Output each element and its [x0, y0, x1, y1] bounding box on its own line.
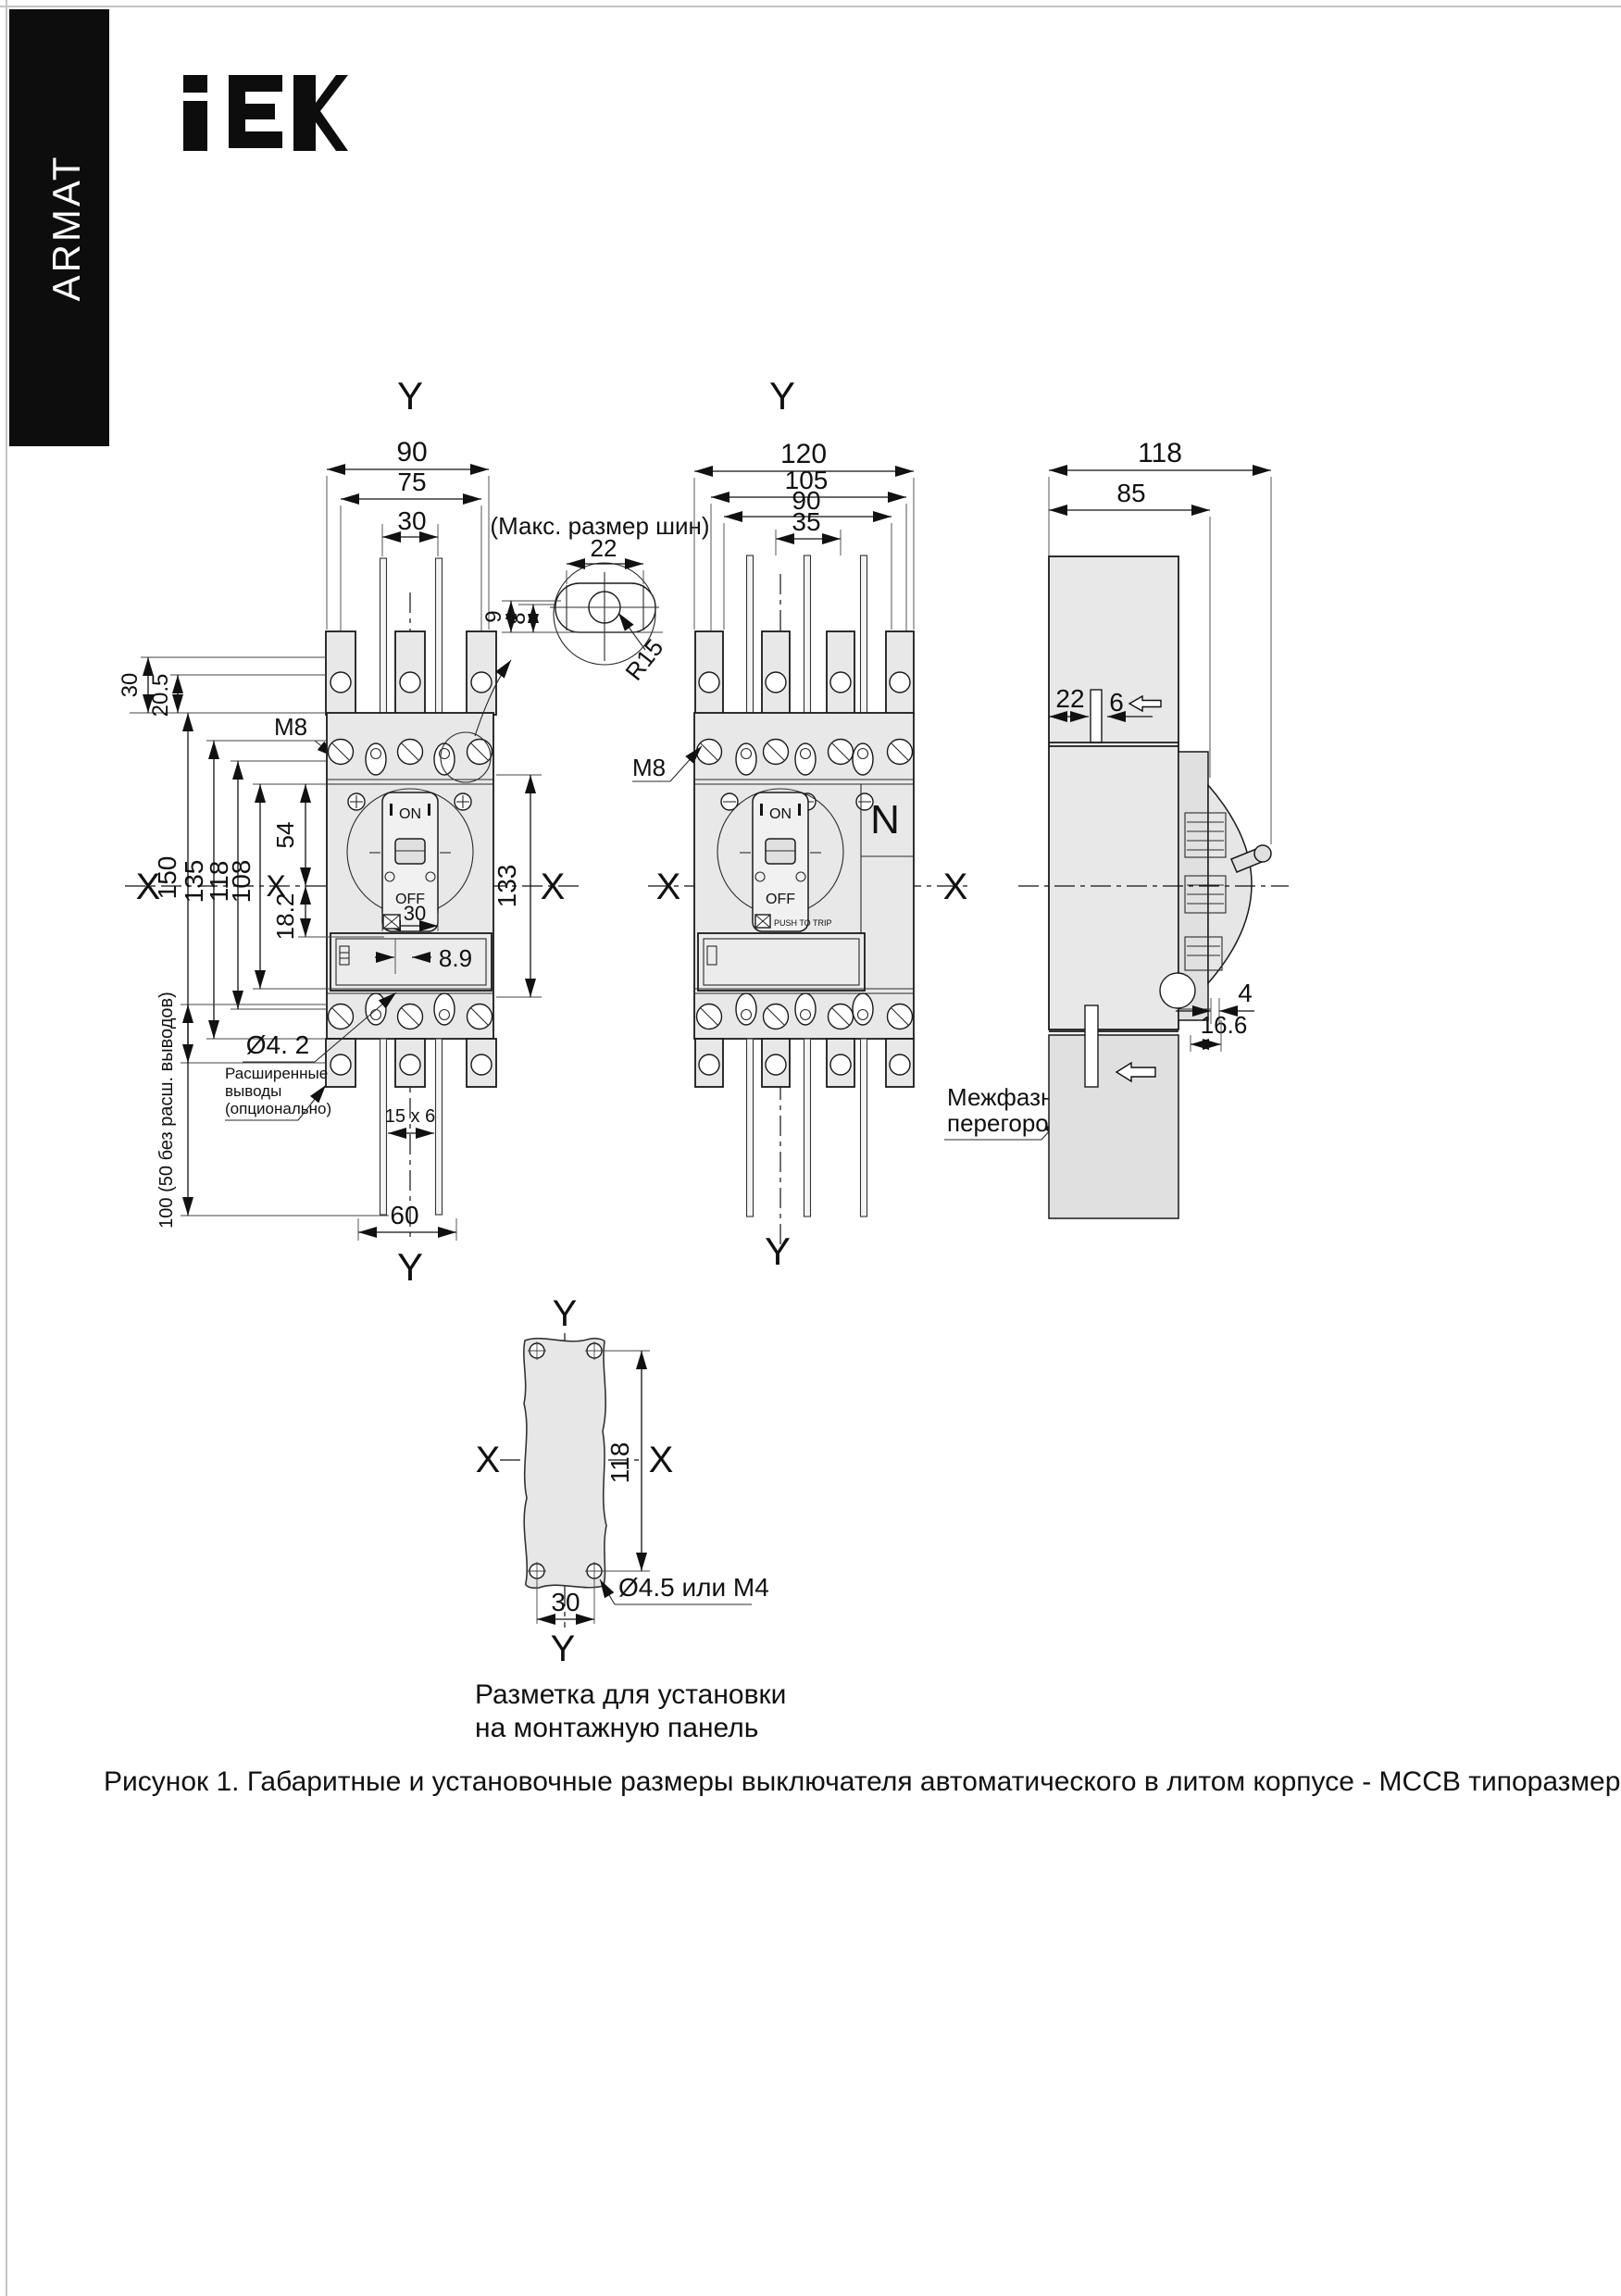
axis-x-mid-label: X — [266, 869, 285, 903]
off-label-4p: OFF — [766, 892, 795, 907]
view-side: 118 85 22 6 — [1018, 438, 1289, 1218]
dim-108-label: 108 — [227, 860, 256, 904]
axis-x-right-label-4p: X — [943, 867, 968, 907]
dim-22-side-label: 22 — [1055, 684, 1084, 713]
dim-133-label: 133 — [493, 865, 521, 908]
dim-85-label: 85 — [1116, 479, 1145, 507]
bus-size-label: 15 x 6 — [385, 1106, 435, 1127]
axis-x-left-label-4p: X — [656, 867, 681, 907]
dim-tab30-label: 30 — [118, 673, 143, 698]
dim-6-label: 6 — [1109, 688, 1124, 717]
mount-y-top-label: Y — [553, 1293, 578, 1334]
dimension-drawing: ARMAT IEK Y 90 75 30 — [0, 0, 1621, 2296]
thread-m8-label: M8 — [274, 713, 307, 741]
mounting-panel — [524, 1339, 606, 1588]
dim-89-label: 8.9 — [439, 944, 472, 972]
push-to-trip-label: PUSH TO TRIP — [774, 918, 832, 928]
dim-4-label: 4 — [1238, 979, 1253, 1007]
on-label: ON — [399, 806, 421, 822]
axis-y-top-label-4p: Y — [769, 374, 795, 418]
dim-118-side-label: 118 — [1138, 438, 1182, 468]
armat-banner: ARMAT — [9, 9, 109, 446]
bus-dim-8-label: 8 — [505, 612, 530, 624]
ext-terminals-line1: Расширенные — [225, 1065, 328, 1082]
thread-m8-label-4p: M8 — [632, 754, 666, 781]
bus-radius-label: R15 — [619, 633, 668, 685]
dim-90-label: 90 — [396, 437, 427, 468]
bus-dim-9-label: 9 — [481, 610, 506, 622]
dim-166-label: 16.6 — [1201, 1011, 1248, 1039]
dim-tab205-label: 20.5 — [148, 674, 173, 717]
dim-35-label: 35 — [792, 507, 820, 536]
view-mounting-layout: Y 118 X X 30 Ø4.5 или M4 Y — [476, 1293, 769, 1669]
figure-caption: Рисунок 1. Габаритные и установочные раз… — [104, 1766, 1621, 1797]
dim-75-label: 75 — [397, 468, 426, 496]
mount-dim-30-label: 30 — [551, 1588, 580, 1616]
dim-54-label: 54 — [271, 822, 299, 849]
mount-dim-118-label: 118 — [605, 1442, 634, 1484]
axis-x-left-label: X — [136, 867, 161, 907]
bus-dim-22-label: 22 — [591, 534, 617, 562]
armat-label: ARMAT — [44, 155, 88, 302]
dim-60-label: 60 — [390, 1201, 418, 1229]
dim-30-handle-label: 30 — [404, 902, 426, 925]
hole-42-label: Ø4. 2 — [246, 1030, 309, 1059]
dim-100-label: 100 (50 без расш. выводов) — [156, 992, 177, 1229]
mount-x-right-label: X — [649, 1440, 674, 1480]
ext-terminals-line2: выводы — [225, 1082, 281, 1100]
view-front-4pole: Y 120 105 90 35 — [632, 374, 1087, 1273]
dim-30-pitch-label: 30 — [397, 506, 426, 535]
mounting-caption-line1: Разметка для установки — [475, 1679, 786, 1710]
on-label-4p: ON — [769, 806, 792, 822]
axis-y-bottom-label: Y — [397, 1245, 423, 1289]
axis-y-bottom-label-4p: Y — [765, 1229, 791, 1273]
mount-hole-spec-label: Ø4.5 или M4 — [618, 1573, 769, 1602]
iek-logo: IEK — [183, 60, 348, 151]
ext-terminals-line3: (опционально) — [225, 1100, 331, 1117]
mounting-caption-line2: на монтажную панель — [475, 1713, 758, 1743]
axis-y-top-label: Y — [397, 374, 423, 418]
mount-x-left-label: X — [476, 1440, 501, 1480]
neutral-pole-label: N — [870, 797, 900, 842]
axis-x-right-label: X — [541, 867, 566, 907]
datasheet-page: ARMAT IEK Y 90 75 30 — [0, 0, 1621, 2296]
bus-size-detail: (Макс. размер шин) 22 9 8 R15 — [481, 512, 710, 685]
mount-y-bottom-label: Y — [551, 1628, 576, 1669]
